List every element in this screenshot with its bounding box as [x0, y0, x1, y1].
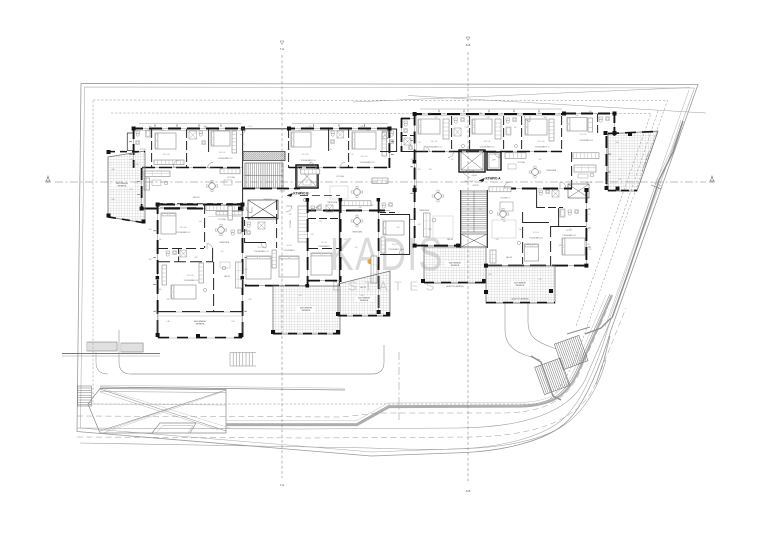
- svg-text:4.10: 4.10: [428, 169, 431, 171]
- svg-text:3.60: 3.60: [162, 130, 165, 132]
- svg-text:ΚΛ.13x18.5: ΚΛ.13x18.5: [242, 175, 250, 177]
- svg-text:2.30: 2.30: [569, 229, 572, 231]
- svg-text:5.25: 5.25: [159, 205, 162, 207]
- svg-text:ΥΠΝΟΔΩΜΑΤΙΟ 02: ΥΠΝΟΔΩΜΑΤΙΟ 02: [184, 279, 199, 282]
- svg-text:1.10: 1.10: [248, 126, 251, 128]
- svg-text:ΥΠΝΟΔΩΜΑΤΙΟ 03: ΥΠΝΟΔΩΜΑΤΙΟ 03: [254, 250, 269, 253]
- svg-text:Γ.Δ: Γ.Δ: [280, 483, 284, 487]
- svg-text:0.80: 0.80: [288, 149, 291, 151]
- svg-text:ΖΑΛΟΝΙ: ΖΑΛΟΝΙ: [447, 238, 454, 241]
- svg-text:2.20: 2.20: [221, 251, 224, 253]
- svg-text:ΚΟΥΖΙΝΑ: ΚΟΥΖΙΝΑ: [227, 176, 235, 179]
- svg-text:ΥΠΝΟΔΩΜΑΤΙΟ 03: ΥΠΝΟΔΩΜΑΤΙΟ 03: [427, 146, 442, 149]
- svg-text:ΥΠΝΟΔΩΜΑΤΙΟ 01: ΥΠΝΟΔΩΜΑΤΙΟ 01: [535, 146, 550, 149]
- svg-text:2.10: 2.10: [479, 209, 482, 211]
- svg-text:1.60: 1.60: [289, 214, 292, 216]
- svg-text:2.05: 2.05: [130, 189, 133, 191]
- svg-text:ΛΟΥΤΡΟ: ΛΟΥΤΡΟ: [140, 149, 147, 151]
- svg-text:ΒΕΡΑΝΤΑ: ΒΕΡΑΝΤΑ: [516, 284, 525, 287]
- svg-text:3.45 x 3.30: 3.45 x 3.30: [484, 141, 491, 143]
- svg-text:1.80: 1.80: [514, 127, 517, 129]
- svg-text:3.45: 3.45: [384, 234, 387, 236]
- svg-text:ΥΠΝΟΔΩΜΑΤΙΟ 03: ΥΠΝΟΔΩΜΑΤΙΟ 03: [301, 159, 316, 162]
- svg-text:ΥΠΝΟΔΩΜΑΤΙΟ 02: ΥΠΝΟΔΩΜΑΤΙΟ 02: [218, 157, 233, 160]
- svg-text:3.65 x 3.40: 3.65 x 3.40: [180, 227, 187, 229]
- svg-text:4.20: 4.20: [135, 164, 138, 166]
- svg-text:ΑΚΑΛΥΠΤΗ ΒΕΡΑΝΤΑ: ΑΚΑΛΥΠΤΗ ΒΕΡΑΝΤΑ: [511, 298, 529, 301]
- svg-text:Δ.Β: Δ.Β: [466, 43, 471, 47]
- svg-text:ΚΤΗΡΙΟ Α: ΚΤΗΡΙΟ Α: [485, 177, 501, 181]
- svg-text:3.10: 3.10: [355, 247, 358, 249]
- svg-text:3.30: 3.30: [496, 239, 499, 241]
- svg-text:2.80: 2.80: [609, 154, 612, 156]
- svg-text:4.15: 4.15: [410, 159, 413, 161]
- svg-text:5.25: 5.25: [232, 321, 235, 323]
- svg-text:LIFT: LIFT: [492, 160, 495, 162]
- svg-text:4.05: 4.05: [248, 299, 251, 301]
- svg-text:3.05: 3.05: [418, 169, 421, 171]
- svg-text:3.20: 3.20: [311, 234, 314, 236]
- svg-text:3.45: 3.45: [478, 113, 481, 115]
- svg-text:3.30: 3.30: [518, 229, 521, 231]
- svg-text:3.20 x 3.05: 3.20 x 3.05: [258, 247, 265, 249]
- svg-text:3.40: 3.40: [576, 115, 579, 117]
- svg-text:3.60: 3.60: [538, 113, 541, 115]
- svg-text:4.05: 4.05: [245, 269, 248, 271]
- svg-text:ΖΑΛΟΝΙ: ΖΑΛΟΝΙ: [193, 196, 200, 199]
- svg-text:ΒΕΡΑΝΤΑ: ΒΕΡΑΝΤΑ: [196, 323, 205, 326]
- svg-text:3.40: 3.40: [199, 221, 202, 223]
- svg-text:4.42: 4.42: [418, 224, 421, 226]
- svg-text:ΥΠΝΟΔΩΜΑΤΙΟ 04: ΥΠΝΟΔΩΜΑΤΙΟ 04: [360, 161, 375, 164]
- svg-text:1.25: 1.25: [619, 179, 622, 181]
- svg-text:3.15 x 3.0: 3.15 x 3.0: [321, 242, 327, 244]
- svg-text:3.90 x 3.30: 3.90 x 3.30: [187, 275, 194, 277]
- svg-text:3.60: 3.60: [428, 113, 431, 115]
- svg-text:3.30 x 3.0: 3.30 x 3.0: [533, 232, 539, 234]
- svg-text:3.40: 3.40: [588, 111, 591, 113]
- svg-text:3.55 x 3.30: 3.55 x 3.30: [302, 154, 309, 156]
- svg-text:0.90: 0.90: [359, 207, 362, 209]
- svg-text:5.80: 5.80: [616, 142, 619, 144]
- svg-text:1.15: 1.15: [344, 239, 347, 241]
- svg-text:3.60: 3.60: [435, 117, 438, 119]
- svg-text:2.66: 2.66: [112, 199, 115, 201]
- svg-text:2.20: 2.20: [465, 127, 468, 129]
- svg-text:3.05: 3.05: [527, 244, 530, 246]
- svg-text:ΖΑΛΟΝΙ: ΖΑΛΟΝΙ: [586, 181, 593, 184]
- svg-text:3.60: 3.60: [544, 117, 547, 119]
- svg-text:ΚΤΗΡΙΟ Β: ΚΤΗΡΙΟ Β: [293, 192, 309, 196]
- svg-text:1.25: 1.25: [538, 279, 541, 281]
- svg-text:ΚΟΥΖΙΝΑ: ΚΟΥΖΙΝΑ: [336, 175, 344, 178]
- svg-text:2.60: 2.60: [539, 159, 542, 161]
- svg-text:3.90: 3.90: [166, 299, 169, 301]
- svg-text:ΚΟΥΖΙΝΑ: ΚΟΥΖΙΝΑ: [218, 218, 226, 221]
- svg-text:1.46: 1.46: [167, 321, 170, 323]
- svg-text:ΑΚΑΛΥΠΤΗ ΒΕΡΑΝΤΑ: ΑΚΑΛΥΠΤΗ ΒΕΡΑΝΤΑ: [446, 285, 464, 288]
- svg-text:1.35: 1.35: [242, 144, 245, 146]
- svg-text:3.55: 3.55: [308, 126, 311, 128]
- svg-text:2.46: 2.46: [148, 229, 151, 231]
- svg-text:1.10: 1.10: [328, 149, 331, 151]
- svg-text:3.40 x 3.05: 3.40 x 3.05: [580, 134, 587, 136]
- svg-text:Δ.Β: Δ.Β: [466, 489, 471, 493]
- svg-text:3.60: 3.60: [559, 245, 562, 247]
- svg-text:3.60 x 3.40: 3.60 x 3.40: [163, 154, 170, 156]
- svg-text:ΤΡΑΠΕΖΑΡΙΑ: ΤΡΑΠΕΖΑΡΙΑ: [219, 241, 230, 244]
- svg-text:3.66: 3.66: [159, 239, 162, 241]
- svg-text:4.15: 4.15: [488, 274, 491, 276]
- svg-text:1.20: 1.20: [298, 295, 301, 297]
- svg-text:ΤΡΑΠΕΖΑΡΙΑ: ΤΡΑΠΕΖΑΡΙΑ: [327, 201, 338, 204]
- svg-text:0.95: 0.95: [130, 159, 133, 161]
- svg-text:3.90: 3.90: [159, 289, 162, 291]
- svg-text:2.15: 2.15: [351, 154, 354, 156]
- svg-text:3.40 x 3.20: 3.40 x 3.20: [219, 152, 226, 154]
- svg-text:ΚΟΥΖΙΝΑ: ΚΟΥΖΙΝΑ: [289, 219, 292, 227]
- svg-text:4.42: 4.42: [428, 229, 431, 231]
- svg-text:3.10 x 2.9: 3.10 x 2.9: [286, 245, 292, 247]
- svg-text:ΥΠΝΟΔΩΜΑΤΙΟ 01: ΥΠΝΟΔΩΜΑΤΙΟ 01: [176, 231, 191, 234]
- svg-text:3.45: 3.45: [487, 117, 490, 119]
- svg-text:3.25: 3.25: [588, 249, 591, 251]
- svg-text:5.10: 5.10: [315, 207, 318, 209]
- svg-text:ΤΡΑΠΕΖΑΡΙΑ: ΤΡΑΠΕΖΑΡΙΑ: [546, 169, 557, 172]
- svg-text:ΚΟΥΖΙΝΑ: ΚΟΥΖΙΝΑ: [517, 161, 525, 164]
- svg-text:ΒΕΡΑΝΤΑ: ΒΕΡΑΝΤΑ: [451, 264, 460, 267]
- svg-text:3.66: 3.66: [148, 259, 151, 261]
- svg-text:1.46: 1.46: [224, 205, 227, 207]
- svg-text:4.10: 4.10: [503, 221, 506, 223]
- svg-text:+165.00: +165.00: [471, 175, 477, 177]
- svg-text:2.46: 2.46: [245, 229, 248, 231]
- svg-text:3.60: 3.60: [360, 126, 363, 128]
- svg-text:3.25: 3.25: [587, 214, 590, 216]
- svg-text:ΤΡΑΠΕΖΑΡΙΑ: ΤΡΑΠΕΖΑΡΙΑ: [352, 231, 363, 234]
- svg-text:2.05: 2.05: [194, 257, 197, 259]
- svg-text:3.55: 3.55: [299, 130, 302, 132]
- svg-text:2.90: 2.90: [397, 227, 400, 229]
- svg-text:3.60 x 3.35: 3.60 x 3.35: [431, 141, 438, 143]
- svg-text:1.20: 1.20: [204, 127, 207, 129]
- svg-text:1.20: 1.20: [587, 244, 590, 246]
- svg-text:1.90: 1.90: [451, 159, 454, 161]
- svg-text:ΖΑΛΟΝΙ: ΖΑΛΟΝΙ: [224, 275, 231, 278]
- svg-text:2.40: 2.40: [305, 127, 308, 129]
- svg-text:ΒΕΡΑΝΤΑ: ΒΕΡΑΝΤΑ: [302, 309, 311, 312]
- svg-text:Γ.Δ: Γ.Δ: [280, 47, 284, 51]
- svg-text:ΥΠΝΟΔΩΜΑΤΙΟ 02: ΥΠΝΟΔΩΜΑΤΙΟ 02: [480, 146, 495, 149]
- svg-text:3.05 x 2.9: 3.05 x 2.9: [392, 244, 398, 246]
- svg-text:ΒΕΡΑΝΤΑ: ΒΕΡΑΝΤΑ: [360, 299, 369, 302]
- svg-text:1.10: 1.10: [418, 142, 421, 144]
- svg-text:4.20: 4.20: [360, 295, 363, 297]
- svg-text:ΖΑΛΟΝΙ: ΖΑΛΟΝΙ: [506, 256, 513, 259]
- svg-text:ΒΕΡΑΝΤΑ: ΒΕΡΑΝΤΑ: [118, 184, 127, 187]
- svg-text:3.60 x 3.50: 3.60 x 3.50: [361, 156, 368, 158]
- svg-text:3.40: 3.40: [217, 130, 220, 132]
- svg-text:ΤΡΑΠΕΖΑΡΙΑ: ΤΡΑΠΕΖΑΡΙΑ: [419, 209, 430, 212]
- svg-text:3.60: 3.60: [367, 130, 370, 132]
- svg-text:3.60 x 3.40: 3.60 x 3.40: [538, 141, 545, 143]
- svg-text:4.08: 4.08: [112, 169, 115, 171]
- svg-text:2.80: 2.80: [319, 221, 322, 223]
- svg-text:3.05: 3.05: [618, 159, 621, 161]
- svg-text:3.60: 3.60: [148, 126, 151, 128]
